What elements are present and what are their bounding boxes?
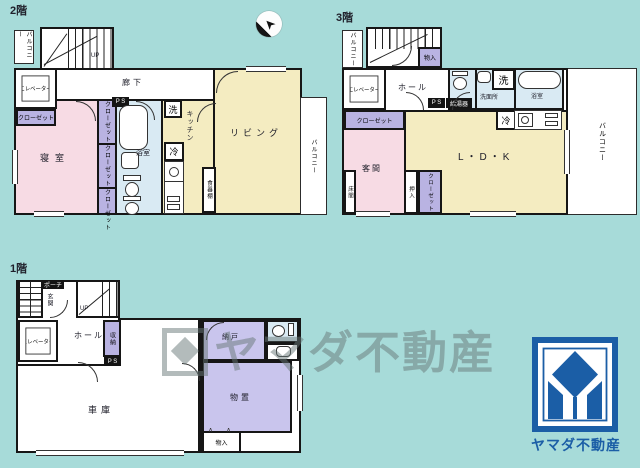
- brand-block: ヤマダ不動産: [0, 0, 640, 468]
- brand-name: ヤマダ不動産: [530, 438, 622, 452]
- brand-logo-icon: [532, 337, 618, 432]
- floorplan-canvas: 2階 ➤ バルコニー クローゼット クローゼット クローゼット 寝室 エレベータ…: [0, 0, 640, 468]
